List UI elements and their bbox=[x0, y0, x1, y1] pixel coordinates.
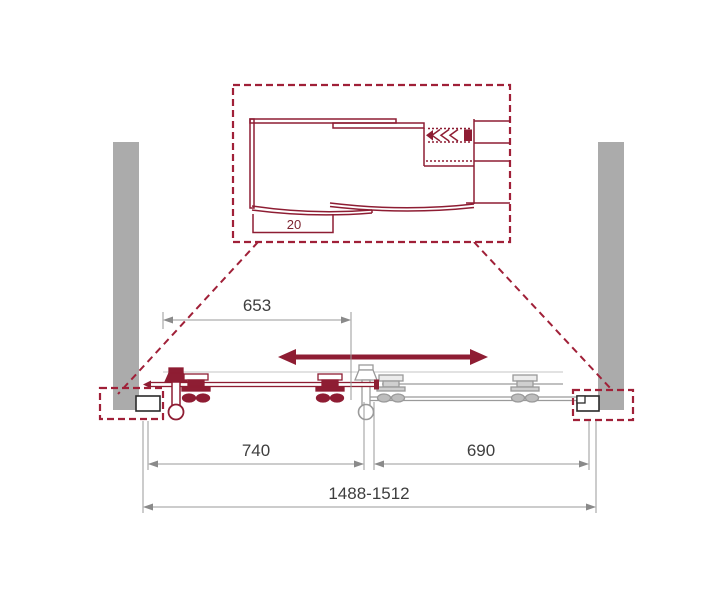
fixed-panel-roller-right bbox=[511, 375, 539, 402]
detail-callout-border bbox=[233, 85, 510, 242]
fixed-panel bbox=[355, 365, 577, 420]
dim-fixed-panel-label: 690 bbox=[467, 441, 495, 460]
dim-stroke-label: 653 bbox=[243, 296, 271, 315]
installation-diagram: 20 bbox=[0, 0, 720, 600]
sliding-panel-roller-right bbox=[316, 374, 344, 402]
sliding-panel bbox=[143, 368, 379, 420]
fixed-panel-roller-left bbox=[377, 375, 405, 402]
right-wall bbox=[598, 142, 624, 410]
sliding-panel-roller-left bbox=[182, 374, 210, 402]
slide-direction-arrow bbox=[278, 349, 488, 365]
left-wall bbox=[113, 142, 139, 410]
detail-offset-label: 20 bbox=[287, 217, 301, 232]
sliding-panel-rail bbox=[150, 383, 377, 387]
dim-overall-label: 1488-1512 bbox=[328, 484, 409, 503]
sliding-panel-end-cap bbox=[374, 380, 379, 390]
dim-sliding-panel-label: 740 bbox=[242, 441, 270, 460]
diagram-canvas: 20 bbox=[0, 0, 720, 600]
detail-callout: 20 bbox=[233, 85, 510, 242]
detail-connector-right bbox=[474, 242, 612, 390]
